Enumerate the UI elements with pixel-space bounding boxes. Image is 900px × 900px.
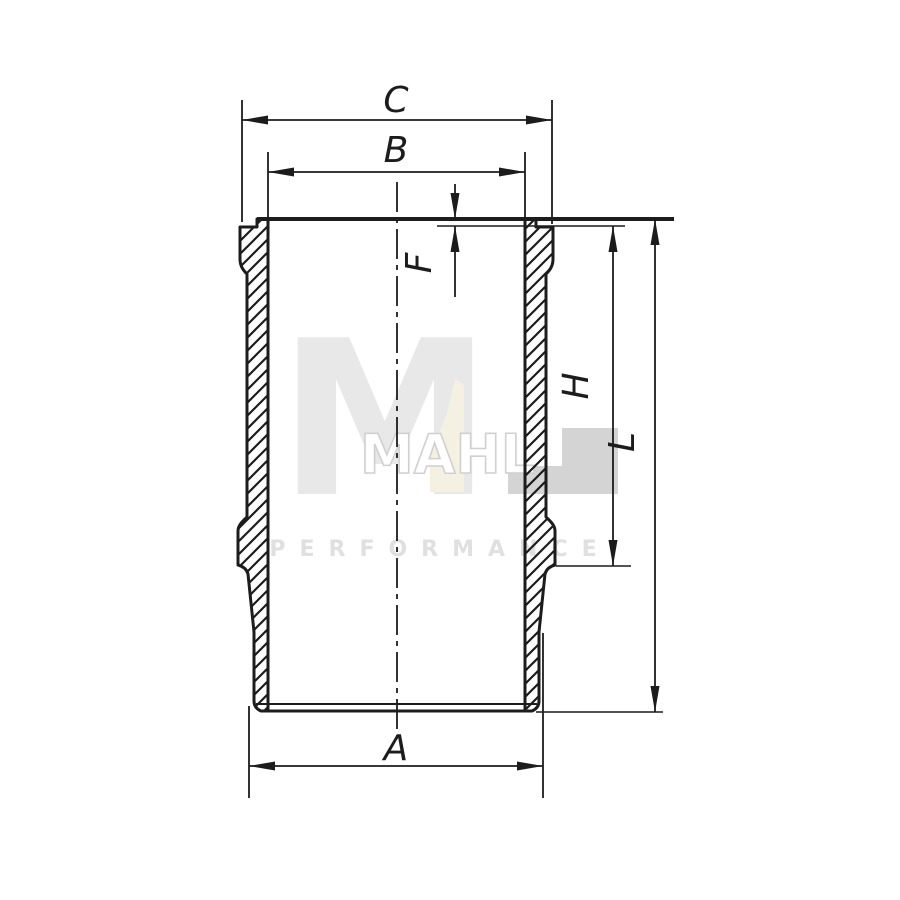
dim-l-arrow-down — [651, 686, 660, 712]
mahle-watermark: M MAHL PERFORMANCE — [269, 294, 618, 562]
dim-l-label: L — [602, 432, 643, 452]
dim-a-arrow-left — [249, 762, 275, 771]
page: M MAHL PERFORMANCE C B — [0, 0, 900, 900]
watermark-performance-text: PERFORMANCE — [269, 537, 610, 562]
dim-b-arrow-left — [268, 168, 294, 177]
dim-f-arrow-down — [451, 193, 460, 219]
dim-b-arrow-right — [499, 168, 525, 177]
dim-h-label: H — [556, 372, 597, 399]
dim-a-arrow-right — [517, 762, 543, 771]
dim-f-arrow-up — [451, 226, 460, 252]
dimension-h: H — [556, 226, 631, 566]
left-wall-section — [238, 219, 268, 711]
dim-c-label: C — [383, 80, 409, 121]
right-wall-section — [525, 219, 555, 711]
dim-a-label: A — [382, 728, 409, 769]
dim-c-arrow-left — [242, 116, 268, 125]
dim-f-label: F — [399, 251, 440, 273]
dimension-a: A — [249, 633, 543, 798]
watermark-outline-letters: MAHL — [360, 423, 535, 486]
technical-drawing-canvas: M MAHL PERFORMANCE C B — [0, 0, 900, 900]
dim-l-arrow-up — [651, 219, 660, 245]
dim-h-arrow-up — [609, 226, 618, 252]
dim-b-label: B — [384, 130, 409, 171]
dimension-f: F — [399, 184, 460, 297]
dim-c-arrow-right — [526, 116, 552, 125]
